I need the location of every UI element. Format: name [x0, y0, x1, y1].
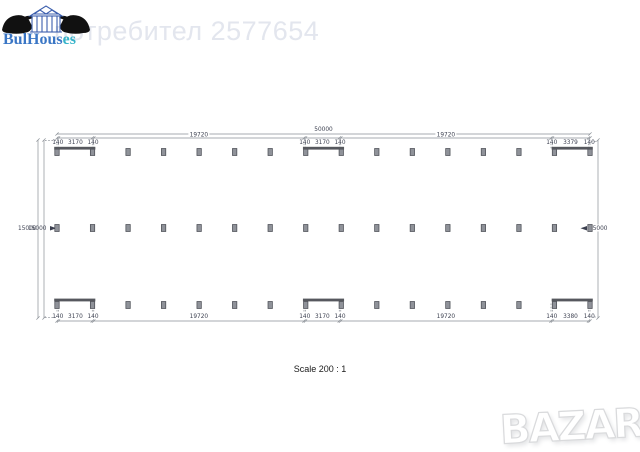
column-footing: [517, 302, 521, 309]
column-footing: [410, 302, 414, 309]
column-footing: [446, 225, 450, 232]
column-footing: [232, 302, 236, 309]
column-footing: [517, 225, 521, 232]
scale-label: Scale 200 : 1: [294, 364, 347, 374]
column-footing: [90, 302, 94, 309]
bottom-dim-label: 140: [546, 314, 557, 320]
bottom-dim-label: 140: [87, 314, 98, 320]
column-footing: [304, 225, 308, 232]
column-footing: [268, 302, 272, 309]
bottom-dim-label: 3380: [563, 314, 578, 320]
column-footing: [55, 302, 59, 309]
wall-bar-top: [303, 147, 344, 150]
wall-bar-bottom: [552, 299, 593, 302]
bottom-dim-label: 140: [584, 314, 595, 320]
column-footing: [446, 149, 450, 156]
column-footing: [375, 302, 379, 309]
column-footing: [588, 225, 592, 232]
column-footing: [517, 149, 521, 156]
column-footing: [304, 302, 308, 309]
wall-bar-top: [552, 147, 593, 150]
top-dim-label: 140: [299, 140, 310, 146]
overall-width-label: 50000: [314, 127, 333, 133]
bottom-dim-label: 3170: [68, 314, 83, 320]
wall-bar-bottom: [303, 299, 344, 302]
wall-bar-top: [54, 147, 95, 150]
column-footing: [446, 302, 450, 309]
column-footing: [588, 302, 592, 309]
column-footing: [126, 302, 130, 309]
top-dim-label: 19720: [190, 133, 209, 139]
column-footing: [126, 225, 130, 232]
column-footing: [55, 225, 59, 232]
column-footing: [268, 149, 272, 156]
column-footing: [197, 302, 201, 309]
column-footing: [232, 149, 236, 156]
column-footing: [90, 225, 94, 232]
top-dim-label: 3170: [315, 140, 330, 146]
bottom-dim-label: 140: [299, 314, 310, 320]
right-dim-arrow-icon: [581, 226, 588, 231]
column-footing: [161, 225, 165, 232]
column-footing: [552, 302, 556, 309]
column-footing: [339, 302, 343, 309]
top-dim-label: 140: [87, 140, 98, 146]
column-footing: [481, 302, 485, 309]
top-dim-label: 140: [52, 140, 63, 146]
column-footing: [410, 225, 414, 232]
top-dim-label: 3379: [563, 140, 578, 146]
column-footing: [481, 225, 485, 232]
column-footing: [552, 225, 556, 232]
top-dim-label: 3170: [68, 140, 83, 146]
column-footing: [268, 225, 272, 232]
top-dim-label: 140: [546, 140, 557, 146]
column-footing: [339, 225, 343, 232]
bottom-dim-label: 19720: [437, 314, 456, 320]
bottom-dim-label: 19720: [190, 314, 209, 320]
column-footing: [410, 149, 414, 156]
column-footing: [481, 149, 485, 156]
top-dim-label: 19720: [437, 133, 456, 139]
wall-bar-bottom: [54, 299, 95, 302]
column-footing: [375, 149, 379, 156]
column-footing: [197, 225, 201, 232]
bottom-dim-label: 140: [334, 314, 345, 320]
floor-plan-drawing: 5000014031701401972014031701401972014033…: [0, 0, 640, 452]
left-height-label: 15000: [28, 226, 47, 232]
column-footing: [375, 225, 379, 232]
top-dim-label: 140: [334, 140, 345, 146]
column-footing: [161, 302, 165, 309]
top-dim-label: 140: [584, 140, 595, 146]
bottom-dim-label: 3170: [315, 314, 330, 320]
column-footing: [161, 149, 165, 156]
listing-image-root: потребител 2577654: [0, 0, 640, 452]
column-footing: [232, 225, 236, 232]
bottom-dim-label: 140: [52, 314, 63, 320]
column-footing: [197, 149, 201, 156]
column-footing: [126, 149, 130, 156]
